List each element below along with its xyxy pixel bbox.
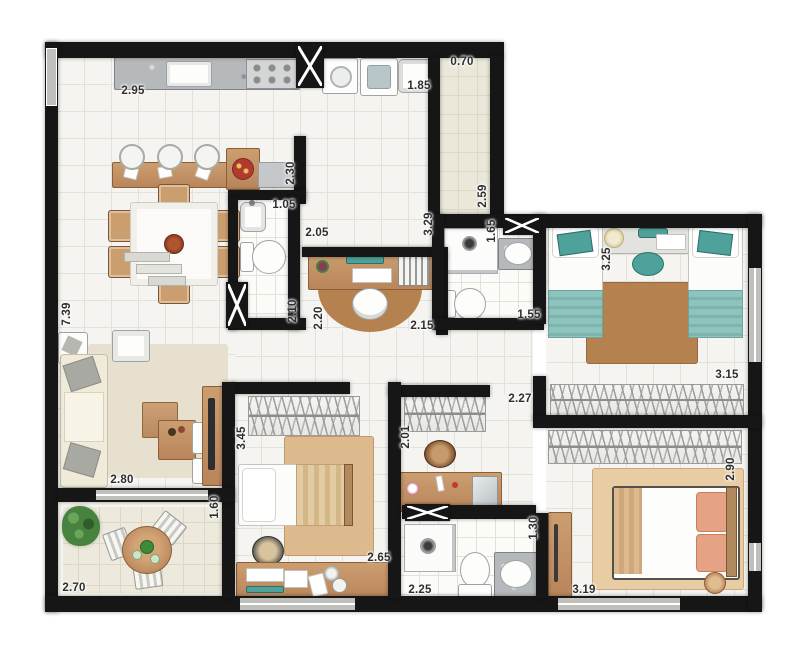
- wall: [490, 56, 504, 216]
- bed-teal-cushion: [557, 230, 594, 257]
- bed-headboard: [726, 487, 737, 577]
- floor-service-corridor: [440, 58, 490, 214]
- tv-screen: [208, 398, 215, 470]
- toilet-bowl: [454, 288, 486, 320]
- bed-teal-cushion: [697, 230, 733, 256]
- bed-blanket: [296, 464, 346, 526]
- side-table: [112, 330, 150, 362]
- stove-cooktop: [246, 59, 298, 89]
- coffee-table: [158, 420, 196, 460]
- balcony-table-plate: [140, 540, 154, 554]
- dressing-mirror: [472, 476, 498, 508]
- kitchen-sink: [166, 61, 212, 87]
- bed-blanket: [548, 290, 603, 338]
- door-symbol: [405, 504, 450, 521]
- wall: [428, 58, 440, 216]
- bed-blanket: [688, 290, 743, 338]
- window: [749, 543, 761, 571]
- wall: [45, 42, 504, 58]
- shower-head: [462, 236, 477, 251]
- wall-shelves: [124, 252, 170, 262]
- wall: [288, 198, 300, 330]
- door-symbol: [503, 216, 541, 235]
- bed-footboard: [344, 464, 353, 526]
- toilet-bowl: [460, 552, 490, 588]
- twin-desk-chair: [632, 252, 664, 276]
- master-pillow: [696, 492, 728, 532]
- office-monitor: [346, 256, 384, 264]
- balcony-table-plate: [150, 554, 160, 564]
- coffee-table-decor: [168, 428, 176, 436]
- desk-keyboard: [656, 234, 686, 250]
- desk-keyboard: [246, 568, 284, 582]
- coffee-table-decor: [178, 426, 185, 433]
- flower-vase: [406, 482, 419, 495]
- shower-head: [420, 538, 436, 554]
- wall: [232, 382, 350, 394]
- window: [240, 598, 355, 610]
- window: [749, 268, 761, 362]
- wall: [45, 42, 58, 612]
- wall-shelves: [148, 276, 186, 286]
- wall: [302, 247, 448, 257]
- balcony-table-plate: [132, 550, 142, 560]
- dining-centerpiece: [164, 234, 184, 254]
- sink-faucet: [249, 200, 255, 206]
- wall: [388, 382, 401, 598]
- office-plant: [316, 260, 329, 273]
- window: [46, 48, 57, 106]
- desk-lamp: [332, 578, 347, 593]
- door-symbol: [226, 282, 248, 328]
- washing-machine-door: [330, 66, 352, 88]
- shaft-symbol: [296, 44, 324, 88]
- toilet-bowl: [252, 240, 286, 274]
- master-pouf: [704, 572, 726, 594]
- teal-ruler: [246, 586, 284, 593]
- dressing-room-closet: [404, 396, 486, 432]
- balcony-plant: [62, 506, 100, 546]
- sink-basin: [500, 560, 532, 588]
- floor-plan: 2.950.701.852.301.052.053.292.591.651.55…: [0, 0, 800, 652]
- bar-side-counter: [258, 162, 298, 188]
- vanity-basin: [504, 242, 532, 265]
- desk-papers: [284, 570, 308, 588]
- wall-shelves: [136, 264, 182, 274]
- bathroom-sink: [240, 202, 266, 232]
- wall: [536, 513, 548, 598]
- dressing-chair: [424, 440, 456, 468]
- bed-pillow: [242, 468, 276, 522]
- dresser-handle: [554, 524, 558, 582]
- laundry-dryer-lid: [367, 65, 391, 89]
- desk-item: [452, 482, 458, 488]
- bar-stool: [157, 144, 183, 170]
- bar-stool: [194, 144, 220, 170]
- wall: [432, 214, 762, 228]
- wall: [388, 385, 490, 397]
- wall: [533, 415, 762, 428]
- bed-foot-runner: [614, 488, 642, 574]
- wall: [432, 318, 544, 330]
- middle-bedroom-closet: [248, 396, 360, 436]
- sofa-seat-cushion: [64, 392, 104, 442]
- wall: [432, 214, 444, 330]
- shower-stall: [444, 228, 498, 274]
- master-bedroom-closet: [548, 430, 742, 464]
- office-keyboard: [352, 268, 392, 283]
- office-books: [398, 256, 430, 286]
- pizza-plate: [232, 158, 254, 180]
- wall: [533, 376, 546, 420]
- office-chair: [352, 288, 388, 320]
- balcony-sliding-door: [96, 490, 208, 500]
- master-pillow: [696, 534, 728, 572]
- bar-stool: [119, 144, 145, 170]
- window: [558, 598, 680, 610]
- master-dresser: [548, 512, 572, 598]
- twin-bedroom-closet: [550, 384, 744, 416]
- desk-lamp: [604, 228, 624, 248]
